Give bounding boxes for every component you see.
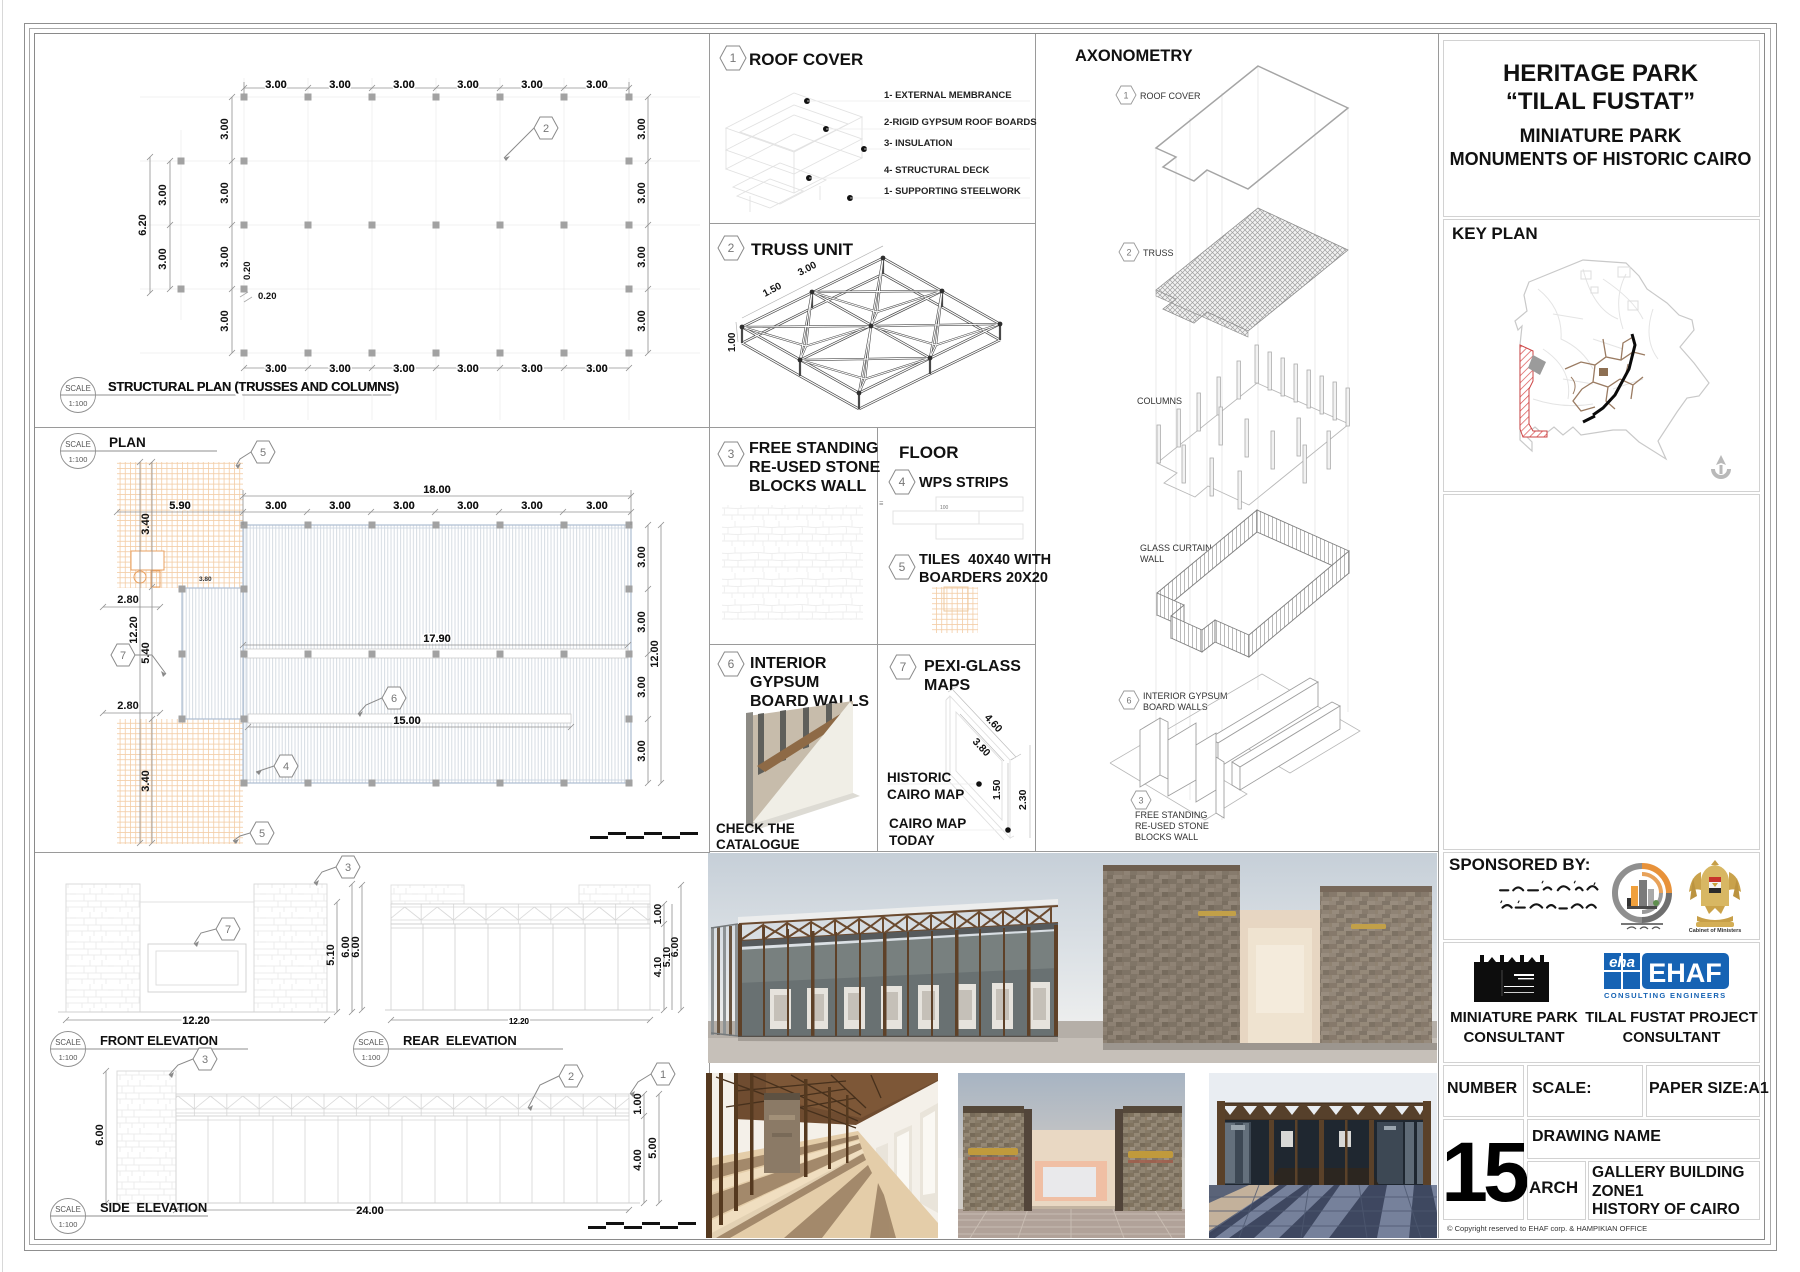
svg-text:1.00: 1.00 [727,332,738,352]
svg-text:4- STRUCTURAL DECK: 4- STRUCTURAL DECK [884,165,990,176]
svg-text:1- EXTERNAL MEMBRANCE: 1- EXTERNAL MEMBRANCE [884,90,1012,101]
svg-text:RE-USED STONE: RE-USED STONE [1135,821,1209,831]
svg-text:Cabinet of Ministers: Cabinet of Ministers [1689,928,1742,934]
svg-text:1.50: 1.50 [761,281,784,300]
svg-text:4.60: 4.60 [982,712,1005,735]
svg-text:eha: eha [1609,954,1635,971]
svg-text:6: 6 [728,657,735,671]
svg-text:2.30: 2.30 [1017,789,1029,810]
svg-text:ROOF COVER: ROOF COVER [749,50,863,69]
svg-text:TILES 40X40 WITH: TILES 40X40 WITH [919,552,1051,568]
svg-text:2-RIGID GYPSUM ROOF BOARDS: 2-RIGID GYPSUM ROOF BOARDS [884,117,1037,128]
svg-text:3: 3 [1138,796,1143,806]
svg-text:GLASS CURTAIN: GLASS CURTAIN [1140,543,1212,553]
svg-text:BOARD WALLS: BOARD WALLS [1143,702,1208,712]
svg-text:BLOCKS WALL: BLOCKS WALL [1135,832,1198,842]
svg-text:TODAY: TODAY [889,833,935,848]
svg-text:FLOOR: FLOOR [899,443,959,462]
svg-text:7: 7 [900,660,907,674]
svg-text:CAIRO MAP: CAIRO MAP [889,816,966,831]
svg-text:4: 4 [899,475,906,489]
svg-text:1: 1 [1123,91,1128,101]
svg-text:INTERIOR GYPSUM: INTERIOR GYPSUM [1143,691,1228,701]
svg-text:COLUMNS: COLUMNS [1137,396,1182,406]
svg-text:BOARDERS 20X20: BOARDERS 20X20 [919,570,1048,586]
svg-text:5: 5 [899,560,906,574]
svg-text:BLOCKS WALL: BLOCKS WALL [749,478,867,495]
svg-text:100: 100 [940,505,949,511]
svg-text:3- INSULATION: 3- INSULATION [884,138,953,149]
svg-text:1.50: 1.50 [991,779,1003,800]
svg-text:RE-USED STONE: RE-USED STONE [749,459,881,476]
svg-text:TRUSS UNIT: TRUSS UNIT [751,240,854,259]
svg-text:EHAF: EHAF [1648,958,1722,988]
svg-text:INTERIOR: INTERIOR [750,655,827,672]
svg-text:2: 2 [1126,248,1131,258]
svg-text:AXONOMETRY: AXONOMETRY [1075,47,1193,65]
svg-text:CHECK THE: CHECK THE [716,821,795,836]
svg-text:3: 3 [728,447,735,461]
svg-text:1: 1 [730,51,737,65]
svg-text:WPS STRIPS: WPS STRIPS [919,475,1009,491]
svg-text:PEXI-GLASS: PEXI-GLASS [924,658,1021,675]
svg-text:1- SUPPORTING STEELWORK: 1- SUPPORTING STEELWORK [884,186,1021,197]
svg-text:☰: ☰ [879,501,884,507]
svg-text:HISTORIC: HISTORIC [887,770,952,785]
svg-text:TRUSS: TRUSS [1143,248,1174,258]
svg-text:FREE STANDING: FREE STANDING [749,440,878,457]
svg-text:MAPS: MAPS [924,677,971,694]
svg-text:CATALOGUE: CATALOGUE [716,837,800,852]
svg-text:WALL: WALL [1140,554,1164,564]
svg-text:3.00: 3.00 [796,260,819,279]
svg-text:FREE STANDING: FREE STANDING [1135,810,1207,820]
svg-text:6: 6 [1126,696,1131,706]
svg-text:GYPSUM: GYPSUM [750,674,819,691]
svg-text:ROOF COVER: ROOF COVER [1140,91,1201,101]
svg-text:3.80: 3.80 [970,736,993,759]
svg-text:2: 2 [728,241,735,255]
svg-text:CAIRO MAP: CAIRO MAP [887,787,964,802]
svg-text:CONSULTING ENGINEERS: CONSULTING ENGINEERS [1604,991,1726,1000]
